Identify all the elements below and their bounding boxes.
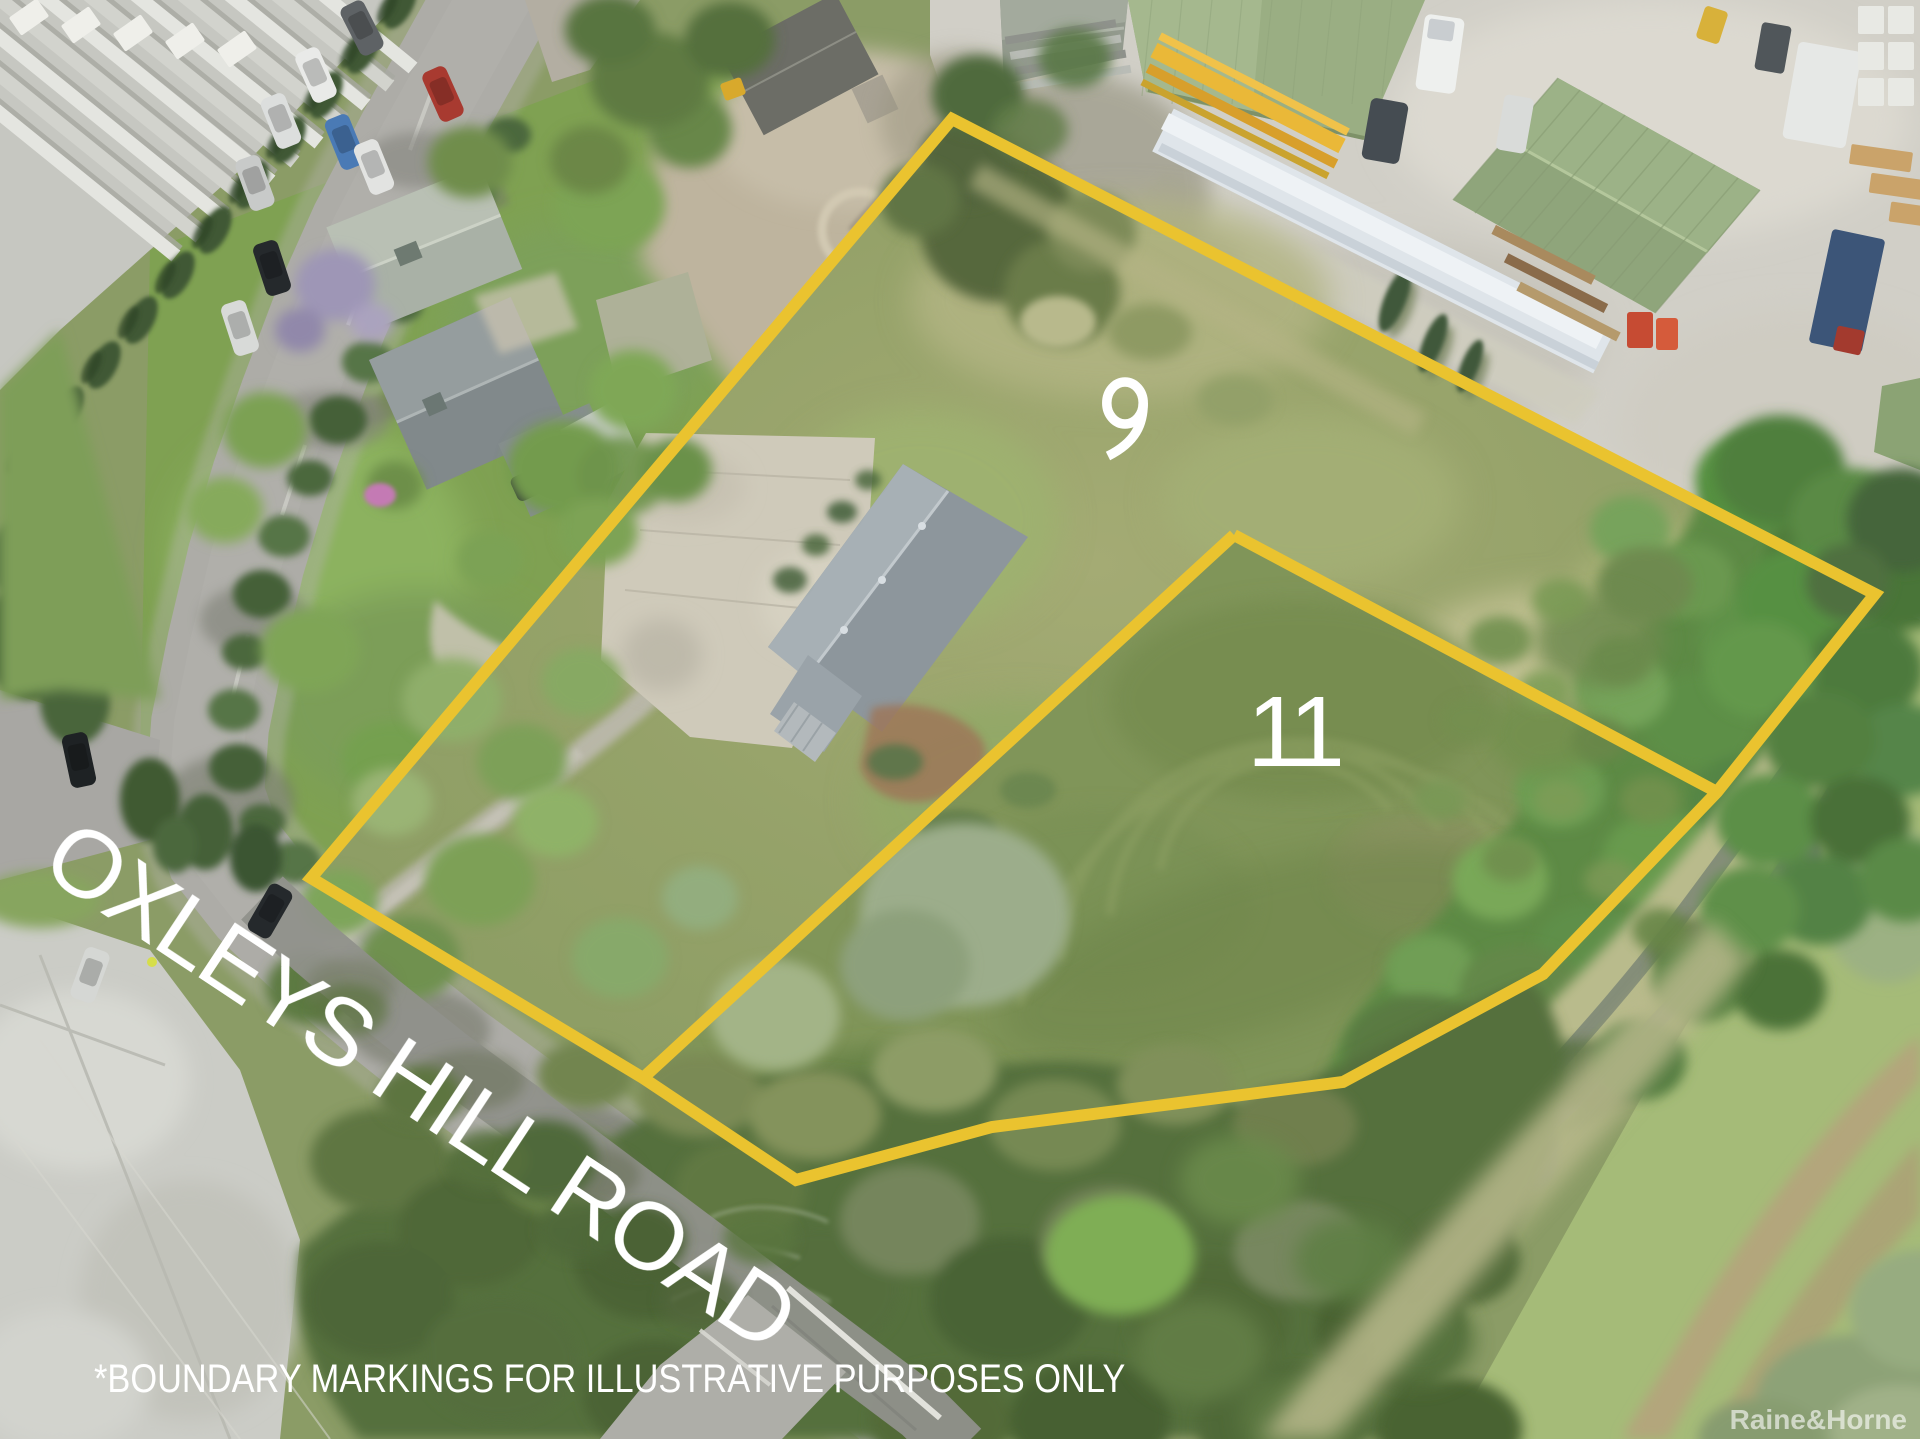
- svg-text:11: 11: [1247, 676, 1340, 788]
- svg-text:*BOUNDARY MARKINGS FOR ILLUSTR: *BOUNDARY MARKINGS FOR ILLUSTRATIVE PURP…: [94, 1356, 1125, 1401]
- svg-text:Raine&Horne: Raine&Horne: [1730, 1404, 1907, 1435]
